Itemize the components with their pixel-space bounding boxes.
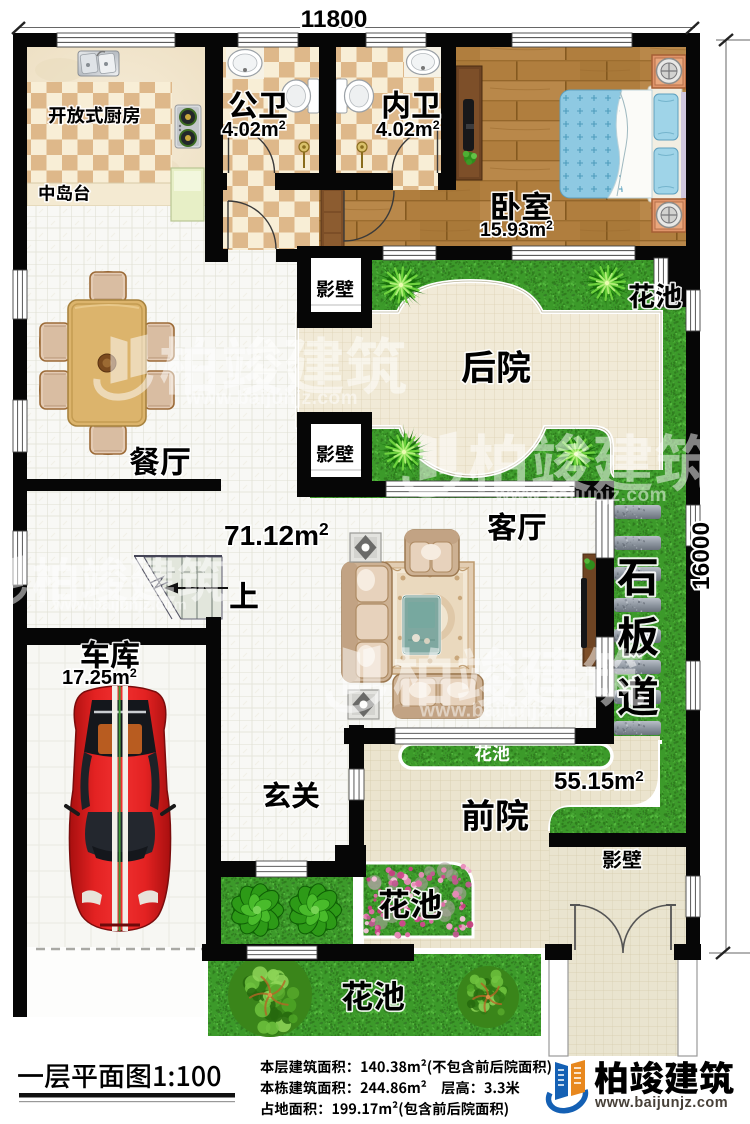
svg-text:16000: 16000 bbox=[688, 522, 715, 590]
svg-text:15.93m2: 15.93m2 bbox=[480, 218, 553, 241]
svg-text:www.baijunjz.com: www.baijunjz.com bbox=[594, 1095, 728, 1111]
svg-text:17.25m2: 17.25m2 bbox=[62, 666, 137, 689]
svg-text:71.12m2: 71.12m2 bbox=[224, 519, 329, 551]
svg-text:4.02m2: 4.02m2 bbox=[376, 118, 440, 141]
svg-text:11800: 11800 bbox=[301, 6, 368, 33]
svg-text:4.02m2: 4.02m2 bbox=[222, 118, 286, 141]
svg-text:55.15m2: 55.15m2 bbox=[554, 768, 644, 795]
